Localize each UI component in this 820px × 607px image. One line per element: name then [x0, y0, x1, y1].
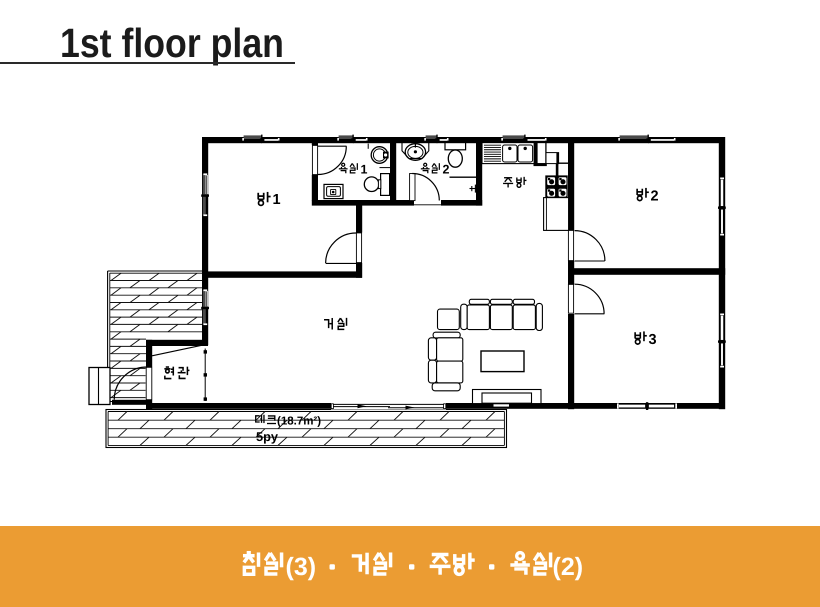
svg-text:2: 2: [443, 163, 450, 177]
svg-text:5py: 5py: [256, 429, 279, 444]
svg-text:(2): (2): [553, 553, 584, 581]
svg-text:1: 1: [273, 192, 281, 208]
svg-text:(18.7m²): (18.7m²): [277, 416, 321, 428]
svg-text:(3): (3): [286, 553, 317, 581]
svg-text:3: 3: [649, 332, 657, 348]
svg-text:2: 2: [651, 189, 659, 205]
svg-text:1: 1: [361, 162, 368, 176]
